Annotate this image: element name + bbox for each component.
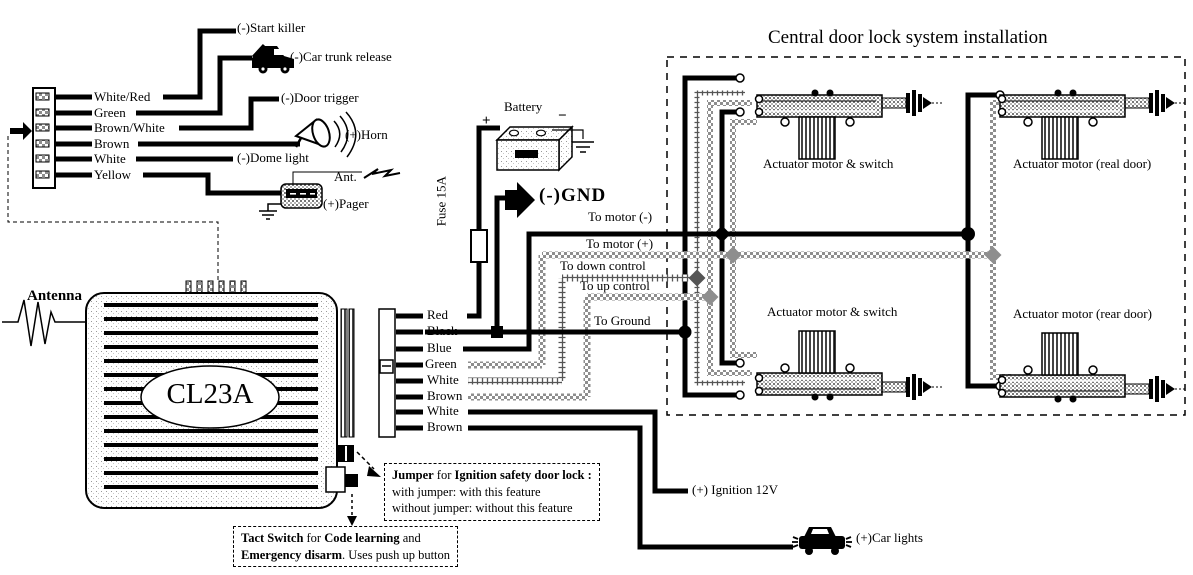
- label-to-ground: To Ground: [594, 314, 651, 328]
- wire-label-brown: Brown: [94, 137, 129, 151]
- wiring-diagram: White/Red Green Brown/White Brown White …: [0, 0, 1193, 575]
- label-car-trunk-release: (-)Car trunk release: [290, 50, 392, 64]
- label-pager: (+)Pager: [323, 197, 369, 211]
- label-gnd: (-)GND: [539, 186, 606, 207]
- pager-icon: [281, 184, 322, 208]
- main-connector-stubs: [396, 316, 423, 428]
- wire-label-white-red: White/Red: [94, 90, 150, 104]
- label-ignition: (+) Ignition 12V: [692, 483, 778, 497]
- label-car-lights: (+)Car lights: [856, 531, 923, 545]
- actuator-rear-top: [999, 90, 1187, 160]
- label-to-up-control: To up control: [580, 279, 650, 293]
- label-fuse: Fuse 15A: [435, 166, 449, 226]
- main-wire-label-white1: White: [427, 373, 459, 387]
- door-lock-title: Central door lock system installation: [768, 28, 1048, 49]
- tact-note-line2: Emergency disarm. Uses push up button: [241, 547, 450, 564]
- wire-label-yellow: Yellow: [94, 168, 131, 182]
- tact-switch-note: Tact Switch for Code learning and Emerge…: [233, 526, 458, 567]
- label-to-motor-minus: To motor (-): [588, 210, 652, 224]
- label-actuator-rear-bottom: Actuator motor (rear door): [1013, 307, 1152, 321]
- main-wire-label-white2: White: [427, 404, 459, 418]
- label-to-down-control: To down control: [560, 259, 646, 273]
- main-wire-label-black: Black: [427, 324, 457, 338]
- gnd-arrow-icon: [505, 182, 535, 218]
- main-wire-label-red: Red: [427, 308, 448, 322]
- label-actuator-front-bottom: Actuator motor & switch: [767, 305, 897, 319]
- jumper-note: Jumper for Ignition safety door lock : w…: [384, 463, 600, 521]
- label-pager-antenna: Ant.: [334, 170, 357, 184]
- car-lights-icon: [792, 527, 852, 555]
- wire-label-white: White: [94, 152, 126, 166]
- jumper-note-line1: Jumper for Ignition safety door lock :: [392, 467, 592, 484]
- main-wire-label-brown1: Brown: [427, 389, 462, 403]
- connector-8pin: [379, 309, 395, 437]
- fuse-icon: [471, 230, 487, 262]
- pager-ground-icon: [259, 204, 281, 219]
- label-actuator-front-top: Actuator motor & switch: [763, 157, 893, 171]
- label-to-motor-plus: To motor (+): [586, 237, 653, 251]
- main-wire-label-green: Green: [425, 357, 457, 371]
- actuator-front-bottom: [756, 331, 944, 401]
- wire-label-green: Green: [94, 106, 126, 120]
- actuator-rear-bottom: [999, 333, 1187, 403]
- car-trunk-icon: [252, 45, 294, 74]
- label-actuator-rear-top: Actuator motor (real door): [1013, 157, 1151, 171]
- antenna-icon: [2, 300, 86, 346]
- label-door-trigger: (-)Door trigger: [281, 91, 359, 105]
- label-start-killer: (-)Start killer: [237, 21, 305, 35]
- main-wire-label-blue: Blue: [427, 341, 452, 355]
- label-antenna: Antenna: [27, 288, 82, 305]
- unit-model-label: CL23A: [160, 379, 260, 411]
- label-dome-light: (-)Dome light: [237, 151, 309, 165]
- jumper-note-line2: with jumper: with this feature: [392, 484, 592, 501]
- jumper-note-line3: without jumper: without this feature: [392, 500, 592, 517]
- battery-ground-icon: [572, 142, 594, 152]
- label-battery: Battery: [504, 100, 542, 114]
- label-horn: (+)Horn: [345, 128, 388, 142]
- battery-icon: [497, 127, 583, 170]
- battery-plus-sign: +: [482, 113, 491, 130]
- tact-note-line1: Tact Switch for Code learning and: [241, 530, 450, 547]
- wire-label-brown-white: Brown/White: [94, 121, 165, 135]
- connector-6pin: [33, 88, 55, 188]
- battery-minus-sign: −: [558, 108, 567, 125]
- actuator-front-top: [756, 90, 944, 160]
- main-wire-label-brown2: Brown: [427, 420, 462, 434]
